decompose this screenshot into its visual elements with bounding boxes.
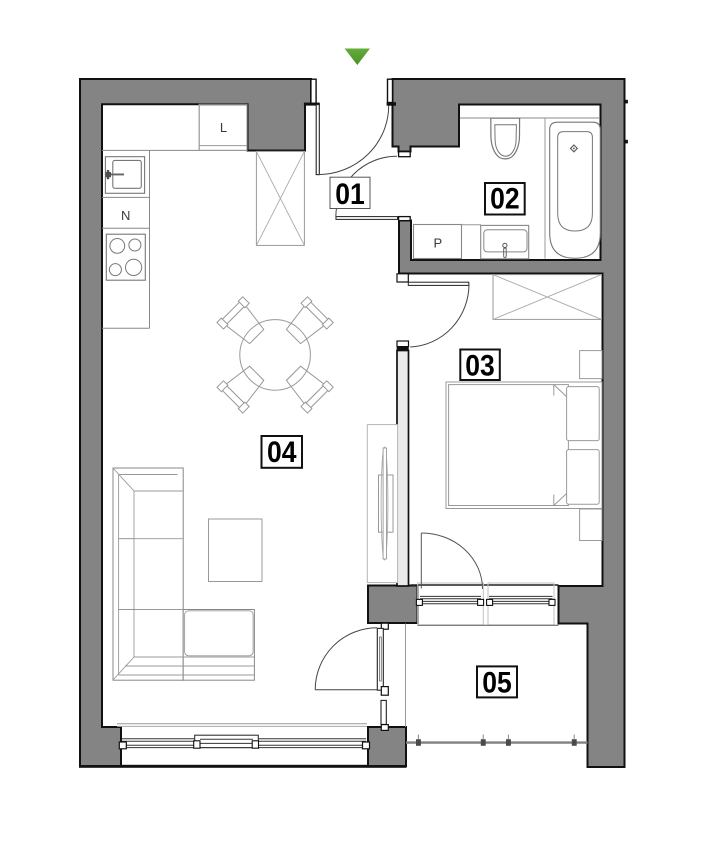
svg-text:04: 04 (267, 436, 297, 469)
svg-text:N: N (121, 208, 130, 223)
svg-text:L: L (220, 120, 227, 135)
svg-text:05: 05 (482, 667, 512, 700)
svg-text:P: P (433, 236, 442, 251)
svg-text:03: 03 (465, 349, 495, 382)
svg-text:02: 02 (490, 182, 520, 215)
svg-text:01: 01 (335, 178, 365, 211)
